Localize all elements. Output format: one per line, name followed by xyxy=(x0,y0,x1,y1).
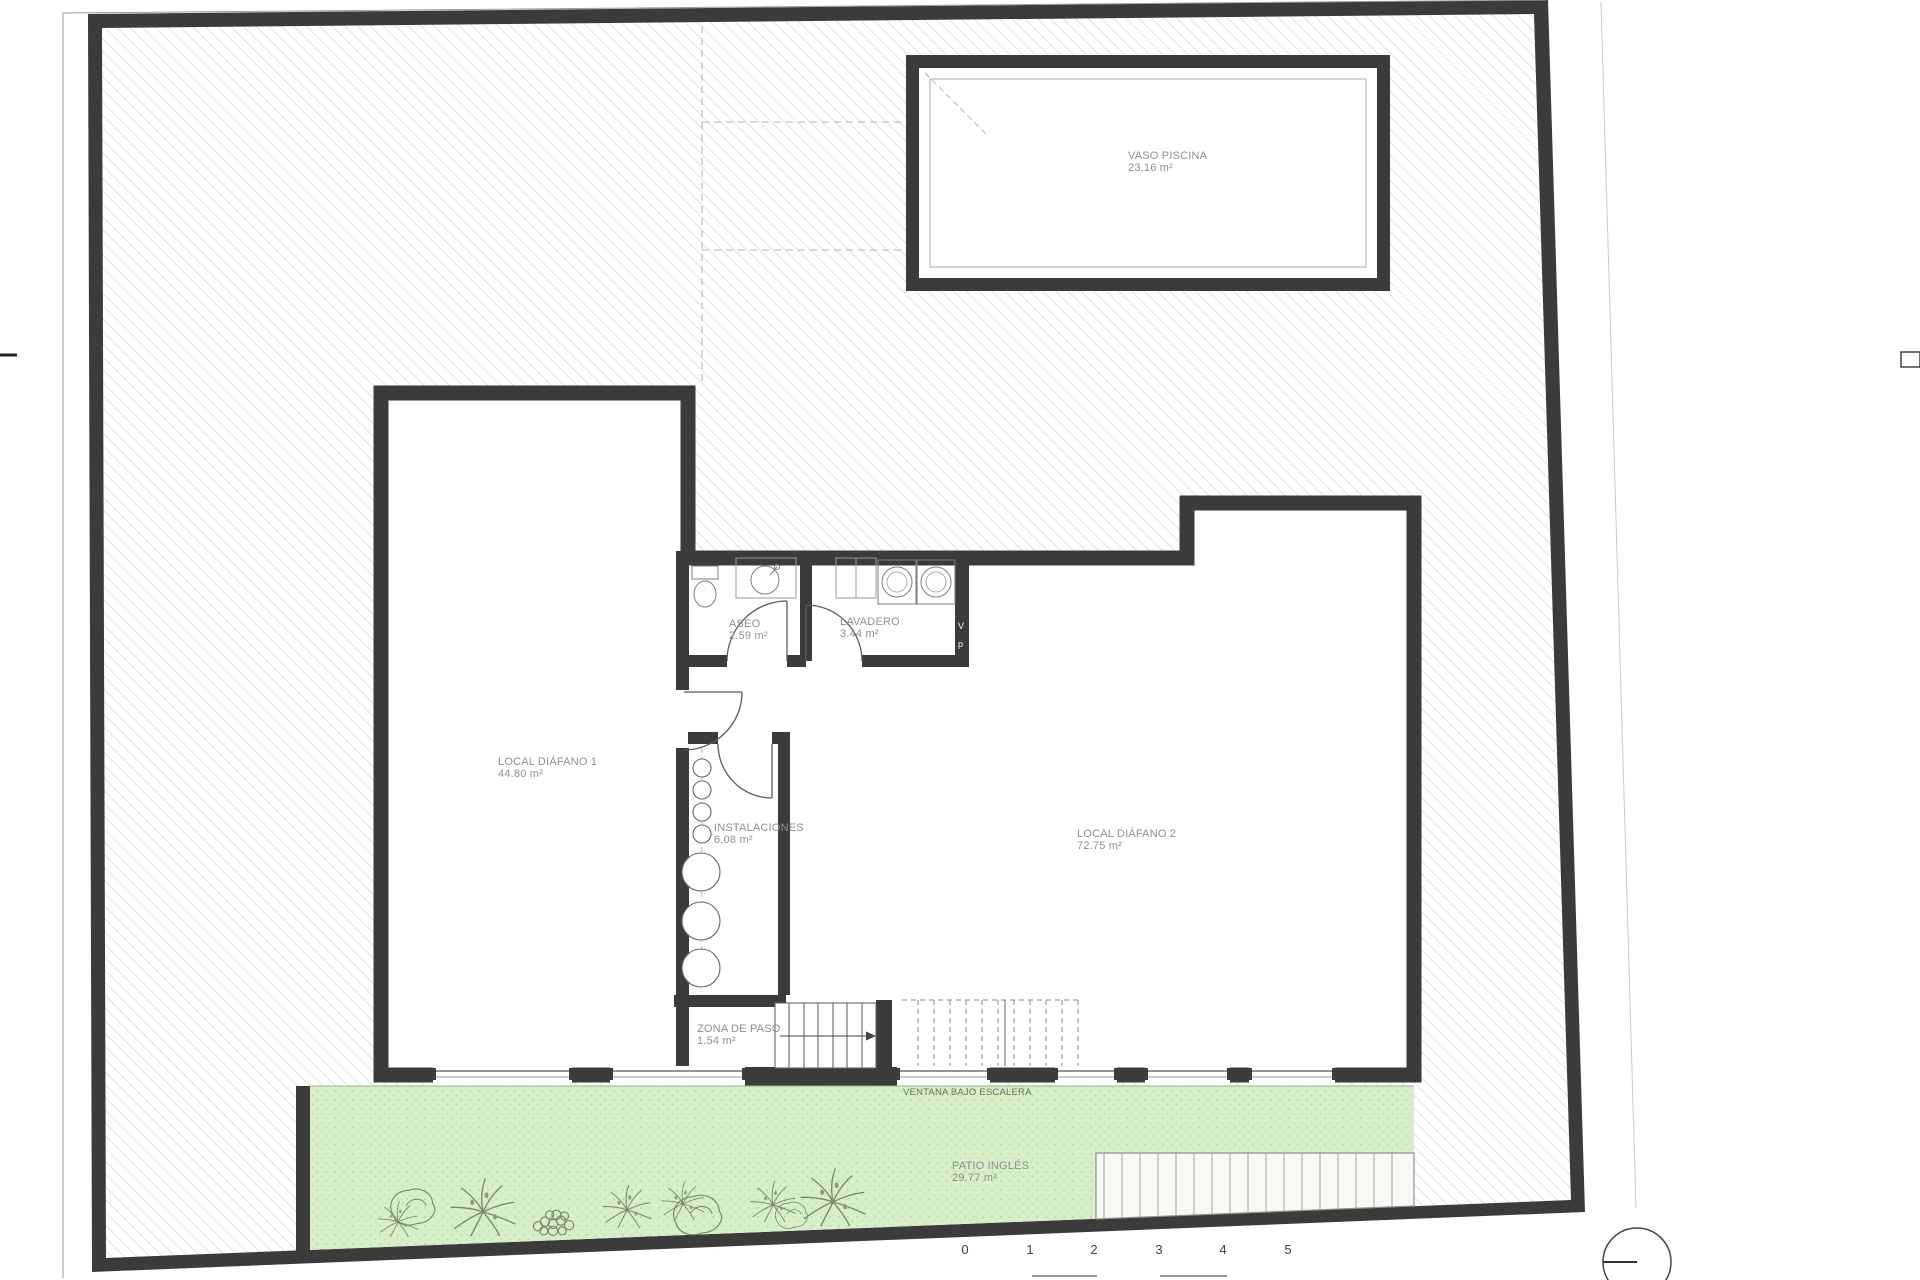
window xyxy=(1055,1066,1117,1085)
room-name: LOCAL DIÁFANO 2 xyxy=(1077,828,1176,840)
window xyxy=(433,1066,572,1085)
riser-label-v: V xyxy=(958,622,964,631)
room-label-local-diafano-2: LOCAL DIÁFANO 2 72.75 m² xyxy=(1077,828,1176,852)
room-area: 72.75 m² xyxy=(1077,840,1176,852)
room-label-zona-de-paso: ZONA DE PASO 1.54 m² xyxy=(697,1023,781,1047)
scale-label-3: 3 xyxy=(1155,1242,1162,1257)
scale-label-4: 4 xyxy=(1219,1242,1226,1257)
scale-label-1: 1 xyxy=(1026,1242,1033,1257)
scale-label-0: 0 xyxy=(961,1242,968,1257)
room-area: 29.77 m² xyxy=(952,1172,1029,1184)
patio-ingles xyxy=(296,1086,1414,1252)
window xyxy=(897,1066,990,1085)
room-area: 2.59 m² xyxy=(729,630,768,642)
window xyxy=(1249,1066,1335,1085)
room-name: LAVADERO xyxy=(840,616,900,628)
window xyxy=(610,1066,745,1085)
room-area: 44.80 m² xyxy=(498,768,597,780)
floor-plan-sheet: VASO PISCINA 23.16 m² LOCAL DIÁFANO 1 44… xyxy=(0,0,1920,1280)
room-label-patio-ingles: PATIO INGLÉS 29.77 m² xyxy=(952,1160,1029,1184)
annotation-ventana-bajo-escalera: VENTANA BAJO ESCALERA xyxy=(903,1088,1032,1098)
room-area: 1.54 m² xyxy=(697,1035,781,1047)
room-name: ZONA DE PASO xyxy=(697,1023,781,1035)
room-label-aseo: ASEO 2.59 m² xyxy=(729,618,768,642)
riser-label-p: p xyxy=(958,640,963,649)
room-area: 3.44 m² xyxy=(840,628,900,640)
scale-label-5: 5 xyxy=(1284,1242,1291,1257)
scale-label-2: 2 xyxy=(1090,1242,1097,1257)
stair-lower xyxy=(775,1003,876,1068)
room-area: 23.16 m² xyxy=(1128,162,1207,174)
compass-icon xyxy=(1603,1228,1671,1280)
room-name: VASO PISCINA xyxy=(1128,150,1207,162)
room-name: INSTALACIONES xyxy=(714,822,804,834)
room-area: 6.08 m² xyxy=(714,834,804,846)
right-margin-mark xyxy=(1901,352,1920,367)
room-name: LOCAL DIÁFANO 1 xyxy=(498,756,597,768)
room-label-vaso-piscina: VASO PISCINA 23.16 m² xyxy=(1128,150,1207,174)
room-label-local-diafano-1: LOCAL DIÁFANO 1 44.80 m² xyxy=(498,756,597,780)
room-label-instalaciones: INSTALACIONES 6.08 m² xyxy=(714,822,804,846)
room-label-lavadero: LAVADERO 3.44 m² xyxy=(840,616,900,640)
room-name: ASEO xyxy=(729,618,768,630)
room-name: PATIO INGLÉS xyxy=(952,1160,1029,1172)
window xyxy=(1145,1066,1230,1085)
